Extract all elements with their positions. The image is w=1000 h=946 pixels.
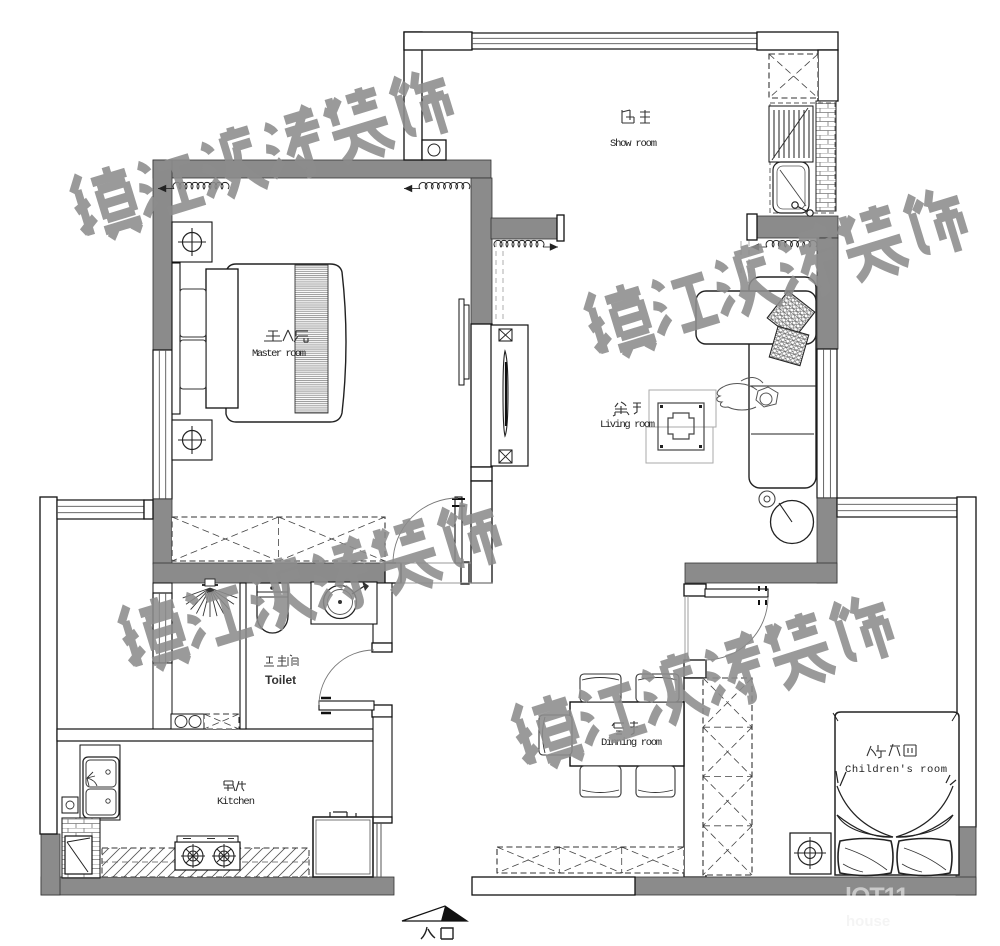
svg-text:Show room: Show room bbox=[610, 138, 657, 150]
svg-text:Toilet: Toilet bbox=[265, 673, 296, 687]
svg-text:house: house bbox=[846, 913, 890, 930]
svg-text:Children's room: Children's room bbox=[845, 764, 947, 776]
svg-text:Kitchen: Kitchen bbox=[217, 796, 255, 808]
svg-text:Living room: Living room bbox=[600, 419, 655, 431]
svg-text:Master room: Master room bbox=[252, 348, 306, 360]
svg-text:lQT11: lQT11 bbox=[845, 883, 909, 911]
